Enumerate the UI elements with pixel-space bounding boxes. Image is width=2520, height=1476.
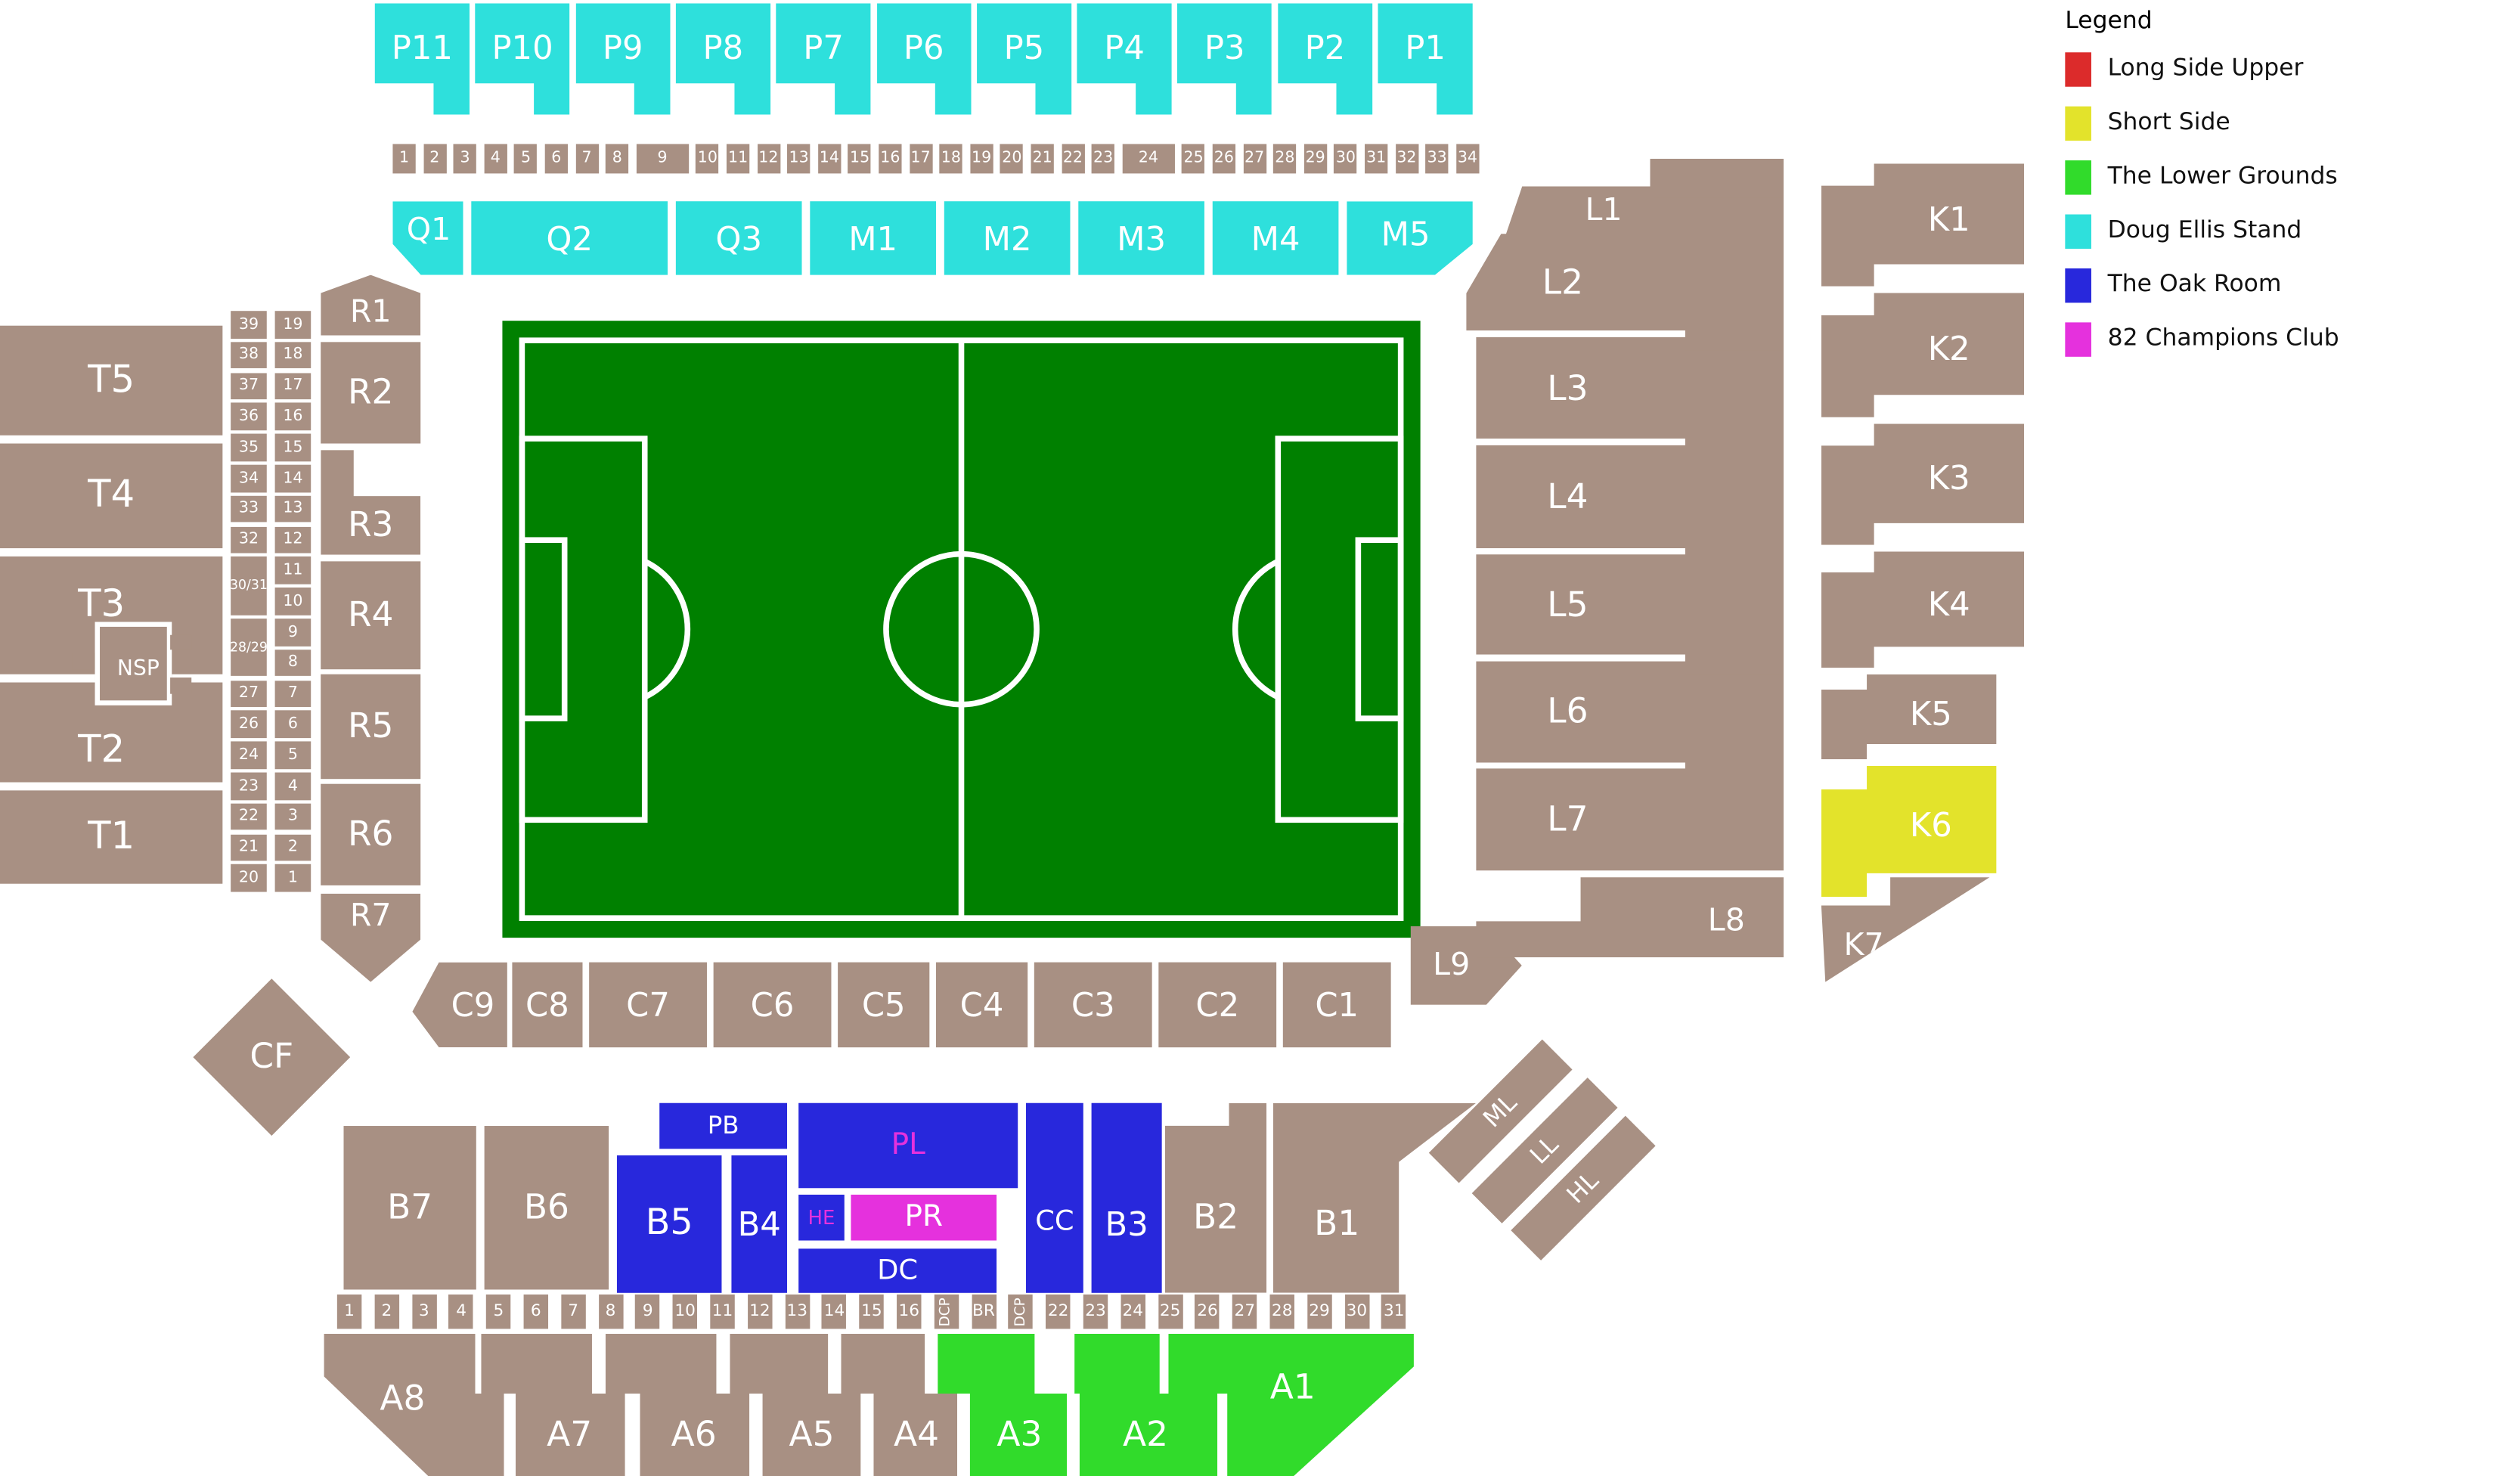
gate-number: 34 — [239, 470, 259, 486]
section-label: Q3 — [715, 222, 762, 254]
gate-number: 13 — [789, 151, 808, 167]
legend-swatch — [2065, 160, 2091, 194]
section-c8[interactable]: C8 — [512, 963, 582, 1048]
gate-number-cell: 13 — [787, 144, 810, 173]
gate-number: 30/31 — [230, 579, 268, 592]
gate-number: 31 — [1384, 1304, 1405, 1320]
gate-number: 11 — [712, 1304, 733, 1320]
section-label: L7 — [1547, 803, 1588, 837]
gate-number: 15 — [850, 151, 869, 167]
gate-number: 28/29 — [230, 641, 268, 654]
gate-number: 9 — [288, 625, 298, 640]
section-label: C5 — [862, 988, 906, 1021]
gate-number-cell: 12 — [748, 1295, 772, 1329]
gate-number-cell: 9 — [636, 144, 688, 173]
gate-number: 16 — [880, 151, 900, 167]
section-p5[interactable]: P5 — [977, 3, 1072, 114]
section-p9[interactable]: P9 — [575, 3, 671, 114]
gate-number: 7 — [568, 1304, 578, 1320]
gate-number-cell: 17 — [275, 373, 312, 400]
section-label: P8 — [703, 31, 744, 64]
gate-number: 2 — [429, 151, 439, 167]
gate-number: 4 — [288, 778, 298, 794]
section-p6[interactable]: P6 — [876, 3, 972, 114]
section-k5[interactable]: K5 — [1821, 674, 1997, 760]
gate-number: 11 — [283, 563, 302, 578]
section-label: R2 — [348, 376, 393, 410]
gate-number-cell: 9 — [275, 619, 312, 646]
section-label: B1 — [1314, 1207, 1359, 1241]
gate-number: 22 — [1048, 1304, 1069, 1320]
gate-number: DCP — [1014, 1298, 1028, 1326]
section-label: ML — [1480, 1090, 1522, 1133]
section-label: A1 — [1270, 1371, 1316, 1405]
gate-number: 2 — [382, 1304, 392, 1320]
gate-number-cell: 37 — [231, 373, 267, 400]
gate-number: 29 — [1306, 151, 1325, 167]
section-label: T1 — [88, 818, 135, 856]
section-k3[interactable]: K3 — [1821, 424, 2024, 545]
section-r1[interactable]: R1 — [321, 275, 420, 336]
section-label: L1 — [1585, 196, 1622, 227]
section-label: CC — [1035, 1208, 1074, 1236]
section-label: LL — [1527, 1132, 1564, 1169]
gate-number-cell: 28 — [1269, 1295, 1294, 1329]
section-label: C4 — [960, 988, 1004, 1021]
gate-number: 32 — [1396, 151, 1416, 167]
gate-number-cell: 12 — [757, 144, 780, 173]
gate-number: 35 — [239, 440, 259, 456]
legend-title: Legend — [2065, 8, 2339, 35]
section-label: P5 — [1004, 31, 1045, 64]
legend: Legend Long Side UpperShort SideThe Lowe… — [2065, 8, 2339, 377]
section-k1[interactable]: K1 — [1821, 163, 2024, 286]
gate-number: 23 — [1085, 1304, 1106, 1320]
section-label: C9 — [451, 988, 495, 1021]
section-label: T3 — [78, 587, 125, 625]
gate-number: 18 — [941, 151, 961, 167]
section-label: K4 — [1928, 588, 1970, 620]
legend-item: Long Side Upper — [2065, 52, 2339, 86]
gate-number-cell: 24 — [1122, 144, 1174, 173]
section-label: R6 — [348, 817, 393, 851]
gate-number-cell: 5 — [486, 1295, 510, 1329]
gate-number-cell: 2 — [275, 834, 312, 861]
section-b4[interactable]: B4 — [731, 1155, 787, 1293]
legend-item: Doug Ellis Stand — [2065, 215, 2339, 249]
gate-number-cell: DCP — [934, 1295, 958, 1329]
section-p11[interactable]: P11 — [375, 3, 470, 114]
section-label: CF — [250, 1040, 293, 1074]
gate-number: 16 — [283, 409, 302, 425]
gate-number: 32 — [239, 532, 259, 548]
section-m5[interactable]: M5 — [1347, 201, 1473, 274]
section-label: L9 — [1433, 950, 1470, 981]
section-label: B6 — [524, 1191, 569, 1225]
gate-number-cell: 33 — [231, 495, 267, 522]
gate-number-cell: 16 — [275, 403, 312, 430]
section-label: K2 — [1928, 332, 1970, 364]
section-label: T2 — [78, 733, 125, 771]
section-label: Q1 — [407, 216, 451, 247]
section-b2[interactable]: B2 — [1165, 1103, 1266, 1293]
gate-number-cell: 32 — [231, 526, 267, 553]
section-label: T4 — [88, 477, 135, 515]
section-p1[interactable]: P1 — [1378, 3, 1473, 114]
gate-number: 22 — [239, 809, 259, 825]
section-t4[interactable]: T4 — [0, 444, 222, 549]
section-label: Q2 — [546, 222, 593, 254]
section-r7[interactable]: R7 — [321, 894, 420, 982]
gate-number: BR — [972, 1304, 995, 1320]
section-r2[interactable]: R2 — [321, 342, 420, 443]
section-pb[interactable]: PB — [659, 1103, 787, 1149]
gate-number-cell: 15 — [860, 1295, 884, 1329]
section-pl[interactable]: PL — [798, 1103, 1018, 1189]
gate-number-cell: 11 — [727, 144, 749, 173]
section-label: L4 — [1547, 480, 1588, 514]
gate-number-cell: 23 — [1083, 1295, 1108, 1329]
section-label: A2 — [1123, 1418, 1168, 1452]
section-p8[interactable]: P8 — [676, 3, 771, 114]
section-b7[interactable]: B7 — [344, 1126, 476, 1289]
gate-number: 8 — [612, 151, 622, 167]
section-label: K5 — [1910, 697, 1952, 730]
gate-number-cell: 29 — [1304, 144, 1327, 173]
gate-number: 11 — [728, 151, 748, 167]
legend-item: 82 Champions Club — [2065, 322, 2339, 356]
section-pr[interactable]: PR — [851, 1195, 997, 1241]
legend-label: 82 Champions Club — [2108, 327, 2339, 351]
gate-number: 4 — [491, 151, 501, 167]
gate-number-cell: 25 — [1158, 1295, 1182, 1329]
section-q1[interactable]: Q1 — [392, 201, 463, 274]
section-label: A4 — [894, 1418, 939, 1452]
section-q3[interactable]: Q3 — [676, 201, 802, 274]
gate-number-cell: 38 — [231, 342, 267, 369]
gate-number-cell: 26 — [1195, 1295, 1220, 1329]
gate-number-cell: 35 — [231, 434, 267, 461]
section-label: M2 — [983, 222, 1032, 254]
section-label: P10 — [491, 31, 553, 64]
section-p7[interactable]: P7 — [776, 3, 871, 114]
gate-number-cell: 7 — [561, 1295, 585, 1329]
section-label: M4 — [1251, 222, 1300, 254]
gate-number: 3 — [288, 809, 298, 825]
stadium-seat-map: P11P10P9P8P7P6P5P4P3P2P1Q1Q2Q3M1M2M3M4M5… — [0, 0, 2520, 1476]
section-label: L5 — [1547, 588, 1588, 622]
gate-number: 27 — [1235, 1304, 1256, 1320]
section-b3[interactable]: B3 — [1092, 1103, 1162, 1293]
gate-number: 38 — [239, 347, 259, 363]
section-he[interactable]: HE — [798, 1195, 845, 1241]
gate-number: 36 — [239, 409, 259, 425]
section-m4[interactable]: M4 — [1213, 201, 1339, 274]
gate-number: 29 — [1309, 1304, 1330, 1320]
gate-number: 25 — [1184, 151, 1204, 167]
section-label: HE — [808, 1208, 835, 1227]
nsp-tab — [72, 653, 95, 670]
gate-number-cell: 27 — [1232, 1295, 1257, 1329]
gate-number-cell: 17 — [909, 144, 931, 173]
section-cc[interactable]: CC — [1026, 1103, 1083, 1293]
gate-number: 24 — [1139, 151, 1158, 167]
section-label: B7 — [387, 1191, 432, 1225]
section-label: B3 — [1105, 1208, 1148, 1240]
gate-number-cell: 34 — [1456, 144, 1479, 173]
gate-number: 5 — [288, 747, 298, 763]
gate-number-cell: 20 — [1000, 144, 1023, 173]
gate-number-cell: 15 — [275, 434, 312, 461]
gate-number: 28 — [1275, 151, 1294, 167]
section-p4[interactable]: P4 — [1077, 3, 1172, 114]
gate-number: 33 — [239, 501, 259, 517]
gate-number-cell: 6 — [524, 1295, 548, 1329]
soccer-pitch — [502, 321, 1420, 938]
gate-number-cell: 39 — [231, 311, 267, 338]
gate-number: 20 — [239, 870, 259, 886]
section-p10[interactable]: P10 — [475, 3, 570, 114]
section-a8[interactable]: A8 — [324, 1334, 504, 1476]
section-c4[interactable]: C4 — [936, 963, 1028, 1048]
legend-label: The Oak Room — [2108, 274, 2282, 297]
gate-number: 19 — [283, 317, 302, 333]
gate-number: 9 — [643, 1304, 653, 1320]
gate-number-cell: 5 — [514, 144, 537, 173]
gate-number-cell: 4 — [449, 1295, 473, 1329]
gate-number-cell: 10 — [275, 588, 312, 615]
section-label: P11 — [392, 31, 453, 64]
gate-number-cell: 22 — [1062, 144, 1084, 173]
section-c5[interactable]: C5 — [838, 963, 929, 1048]
gate-number: 21 — [239, 839, 259, 855]
section-label: A6 — [671, 1418, 717, 1452]
legend-swatch — [2065, 322, 2091, 356]
section-t5[interactable]: T5 — [0, 326, 222, 436]
gate-number: 15 — [283, 440, 302, 456]
gate-number-cell: 7 — [575, 144, 598, 173]
gate-number: 23 — [239, 778, 259, 794]
legend-label: Short Side — [2108, 112, 2230, 135]
gate-number-cell: 18 — [940, 144, 962, 173]
section-k2[interactable]: K2 — [1821, 293, 2024, 417]
legend-item: The Oak Room — [2065, 268, 2339, 302]
gate-number-cell: BR — [972, 1295, 996, 1329]
gate-number: 15 — [861, 1304, 882, 1320]
gate-number-cell: 32 — [1395, 144, 1418, 173]
gate-number-cell: 14 — [275, 465, 312, 492]
section-c7[interactable]: C7 — [589, 963, 707, 1048]
gate-number-cell: 18 — [275, 342, 312, 369]
section-r6[interactable]: R6 — [321, 784, 420, 885]
section-p2[interactable]: P2 — [1278, 3, 1373, 114]
gate-number-cell: 10 — [696, 144, 719, 173]
gate-number: 23 — [1093, 151, 1113, 167]
gate-number: 3 — [460, 151, 470, 167]
gate-number-cell: 20 — [231, 865, 267, 892]
section-label: PL — [891, 1131, 925, 1161]
gate-number-cell: 23 — [1092, 144, 1114, 173]
section-label: P2 — [1305, 31, 1346, 64]
section-c2[interactable]: C2 — [1158, 963, 1276, 1048]
gate-number-cell: 2 — [374, 1295, 398, 1329]
section-b5[interactable]: B5 — [617, 1155, 722, 1293]
gate-number: 16 — [898, 1304, 919, 1320]
gate-number: 37 — [239, 378, 259, 394]
gate-number-cell: 13 — [275, 495, 312, 522]
section-label: R5 — [348, 709, 393, 743]
section-label: C2 — [1195, 988, 1239, 1021]
section-label: NSP — [117, 658, 160, 679]
section-m1[interactable]: M1 — [810, 201, 936, 274]
gate-number: 5 — [494, 1304, 504, 1320]
section-label: R3 — [348, 508, 393, 542]
gate-number-cell: 23 — [231, 773, 267, 800]
section-k4[interactable]: K4 — [1821, 551, 2024, 668]
gate-number-cell: 1 — [392, 144, 415, 173]
gate-number-cell: 21 — [231, 834, 267, 861]
section-label: P7 — [803, 31, 844, 64]
section-label: L3 — [1547, 372, 1588, 406]
section-label: HL — [1563, 1168, 1603, 1208]
gate-number: 20 — [1002, 151, 1021, 167]
gate-number-cell: 15 — [848, 144, 871, 173]
gate-number-cell: 28/29 — [231, 619, 267, 676]
section-cf[interactable]: CF — [193, 978, 350, 1136]
gate-number: 33 — [1427, 151, 1447, 167]
gate-number-cell: 24 — [231, 742, 267, 769]
gate-number-cell: 31 — [1365, 144, 1387, 173]
section-p3[interactable]: P3 — [1177, 3, 1272, 114]
section-label: L8 — [1708, 906, 1745, 937]
gate-number: 30 — [1347, 1304, 1368, 1320]
gate-number: 10 — [283, 594, 302, 609]
gate-number: 6 — [531, 1304, 541, 1320]
section-label: C1 — [1315, 988, 1359, 1021]
section-c3[interactable]: C3 — [1034, 963, 1152, 1048]
section-nsp[interactable]: NSP — [95, 622, 172, 705]
section-c1[interactable]: C1 — [1283, 963, 1391, 1048]
section-m3[interactable]: M3 — [1078, 201, 1204, 274]
gate-number-cell: 3 — [412, 1295, 436, 1329]
gate-number: 4 — [456, 1304, 466, 1320]
gate-number-cell: 28 — [1273, 144, 1296, 173]
legend-swatch — [2065, 52, 2091, 86]
section-r4[interactable]: R4 — [321, 561, 420, 669]
pitch-markings — [502, 321, 1420, 938]
gate-number: 39 — [239, 317, 259, 333]
gate-number-cell: 27 — [1243, 144, 1266, 173]
section-c9[interactable]: C9 — [412, 963, 507, 1048]
section-c6[interactable]: C6 — [714, 963, 832, 1048]
section-label: C7 — [626, 988, 670, 1021]
gate-number-cell: 4 — [484, 144, 507, 173]
section-q2[interactable]: Q2 — [471, 201, 668, 274]
section-label: R4 — [348, 598, 393, 632]
legend-swatch — [2065, 107, 2091, 141]
section-label: A8 — [380, 1382, 425, 1416]
nsp-tab — [170, 635, 191, 650]
gate-number-cell: 8 — [275, 650, 312, 677]
gate-number-cell: 11 — [275, 557, 312, 585]
section-label: C3 — [1071, 988, 1115, 1021]
section-label: K3 — [1928, 461, 1970, 494]
gate-number: 3 — [419, 1304, 429, 1320]
section-r3[interactable]: R3 — [321, 450, 420, 555]
section-t1[interactable]: T1 — [0, 790, 222, 883]
gate-number-cell: 16 — [897, 1295, 921, 1329]
section-label: C8 — [525, 988, 569, 1021]
gate-number-cell: 31 — [1382, 1295, 1406, 1329]
section-dc[interactable]: DC — [798, 1248, 997, 1292]
legend-item: The Lower Grounds — [2065, 160, 2339, 194]
nsp-tab — [170, 678, 191, 694]
gate-number: 7 — [582, 151, 592, 167]
section-a6[interactable]: A6 — [606, 1334, 749, 1476]
section-label: M1 — [848, 222, 897, 254]
section-label: P9 — [603, 31, 643, 64]
section-label: K7 — [1844, 930, 1884, 961]
gate-number-cell: 3 — [275, 803, 312, 830]
gate-number: 27 — [239, 686, 259, 702]
gate-number: 1 — [288, 870, 298, 886]
section-b1[interactable]: B1 — [1273, 1103, 1476, 1293]
gate-number-cell: 3 — [454, 144, 476, 173]
gate-number-cell: 19 — [275, 311, 312, 338]
section-label: A3 — [997, 1418, 1042, 1452]
gate-number-cell: 22 — [231, 803, 267, 830]
gate-number: 2 — [288, 839, 298, 855]
gate-number: 25 — [1160, 1304, 1181, 1320]
gate-number-cell: 6 — [275, 711, 312, 738]
gate-number: 12 — [749, 1304, 770, 1320]
section-label: T5 — [88, 361, 135, 399]
section-m2[interactable]: M2 — [944, 201, 1071, 274]
gate-number: 26 — [1197, 1304, 1218, 1320]
gate-number: 14 — [283, 470, 302, 486]
section-label: DC — [877, 1257, 918, 1285]
gate-number-cell: 14 — [822, 1295, 846, 1329]
gate-number: 19 — [972, 151, 991, 167]
gate-number-cell: 25 — [1182, 144, 1204, 173]
section-label: M3 — [1117, 222, 1166, 254]
gate-number: 1 — [399, 151, 409, 167]
section-label: K6 — [1910, 808, 1952, 841]
gate-number: DCP — [939, 1298, 953, 1326]
gate-number-cell: 16 — [879, 144, 901, 173]
section-r5[interactable]: R5 — [321, 674, 420, 780]
gate-number: 10 — [674, 1304, 696, 1320]
gate-number-cell: 13 — [785, 1295, 809, 1329]
section-label: C6 — [751, 988, 795, 1021]
gate-number: 22 — [1063, 151, 1083, 167]
gate-number-cell: 12 — [275, 526, 312, 553]
section-label: P4 — [1104, 31, 1145, 64]
section-l8[interactable]: L8 — [1476, 877, 1784, 957]
gate-number: 31 — [1366, 151, 1386, 167]
gate-number: 14 — [820, 151, 839, 167]
gate-number: 12 — [758, 151, 778, 167]
gate-number-cell: 1 — [275, 865, 312, 892]
gate-number-cell: DCP — [1009, 1295, 1033, 1329]
gate-number-cell: 6 — [545, 144, 568, 173]
legend-swatch — [2065, 268, 2091, 302]
section-label: R7 — [350, 901, 392, 932]
section-b6[interactable]: B6 — [485, 1126, 609, 1289]
gate-number-cell: 11 — [710, 1295, 734, 1329]
gate-number-cell: 2 — [423, 144, 446, 173]
gate-number-cell: 30 — [1334, 144, 1357, 173]
